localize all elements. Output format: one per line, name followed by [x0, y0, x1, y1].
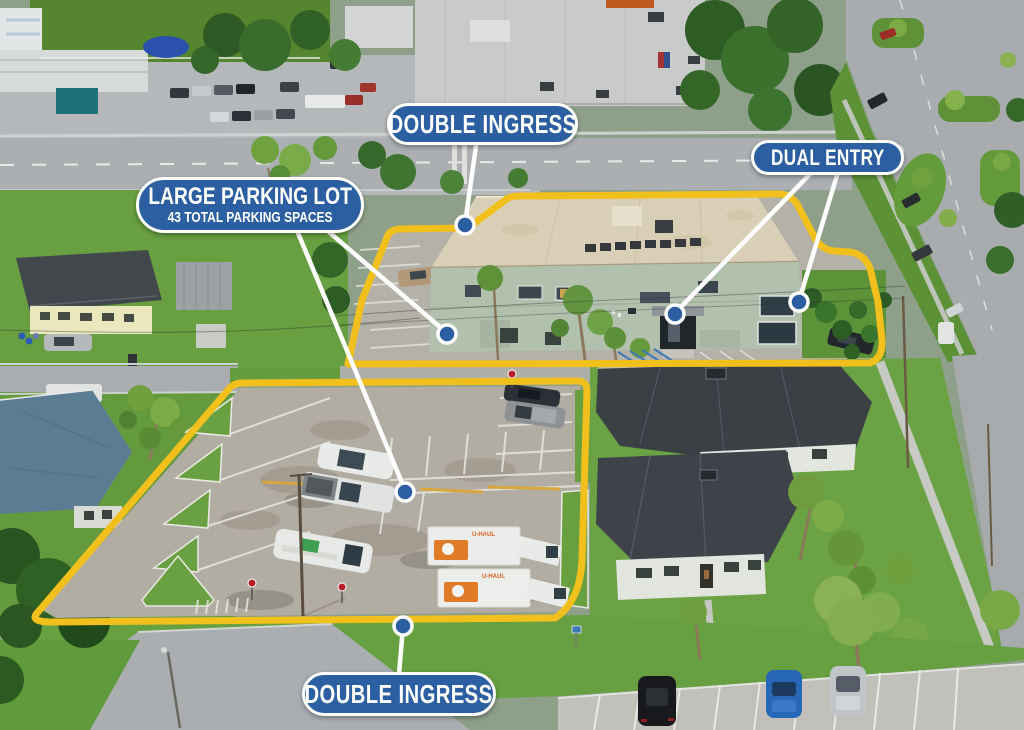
label-text: DOUBLE INGRESS: [305, 681, 493, 707]
flag-mural: [658, 52, 664, 68]
label-text: DUAL ENTRY: [771, 147, 885, 169]
label-title: LARGE PARKING LOT: [148, 184, 351, 209]
label-double-ingress-bottom: DOUBLE INGRESS: [302, 672, 496, 716]
target-dot-parking-lower: [396, 483, 414, 501]
annotated-aerial-photo: U-HAUL U-HAUL: [0, 0, 1024, 730]
label-dual-entry: DUAL ENTRY: [751, 140, 904, 175]
uhaul-brand-text: U-HAUL: [482, 574, 505, 580]
label-large-parking-lot: LARGE PARKING LOT 43 TOTAL PARKING SPACE…: [136, 177, 364, 233]
label-double-ingress-top: DOUBLE INGRESS: [387, 103, 578, 145]
label-text: DOUBLE INGRESS: [388, 111, 576, 137]
target-dot-parking-upper: [438, 325, 456, 343]
uhaul-brand-text: U-HAUL: [472, 532, 495, 538]
target-dot-ingress-bottom: [394, 617, 412, 635]
target-dot-ingress-top: [456, 216, 474, 234]
label-subtitle: 43 TOTAL PARKING SPACES: [168, 209, 333, 226]
target-dot-entry-left: [666, 305, 684, 323]
target-dot-entry-right: [790, 293, 808, 311]
